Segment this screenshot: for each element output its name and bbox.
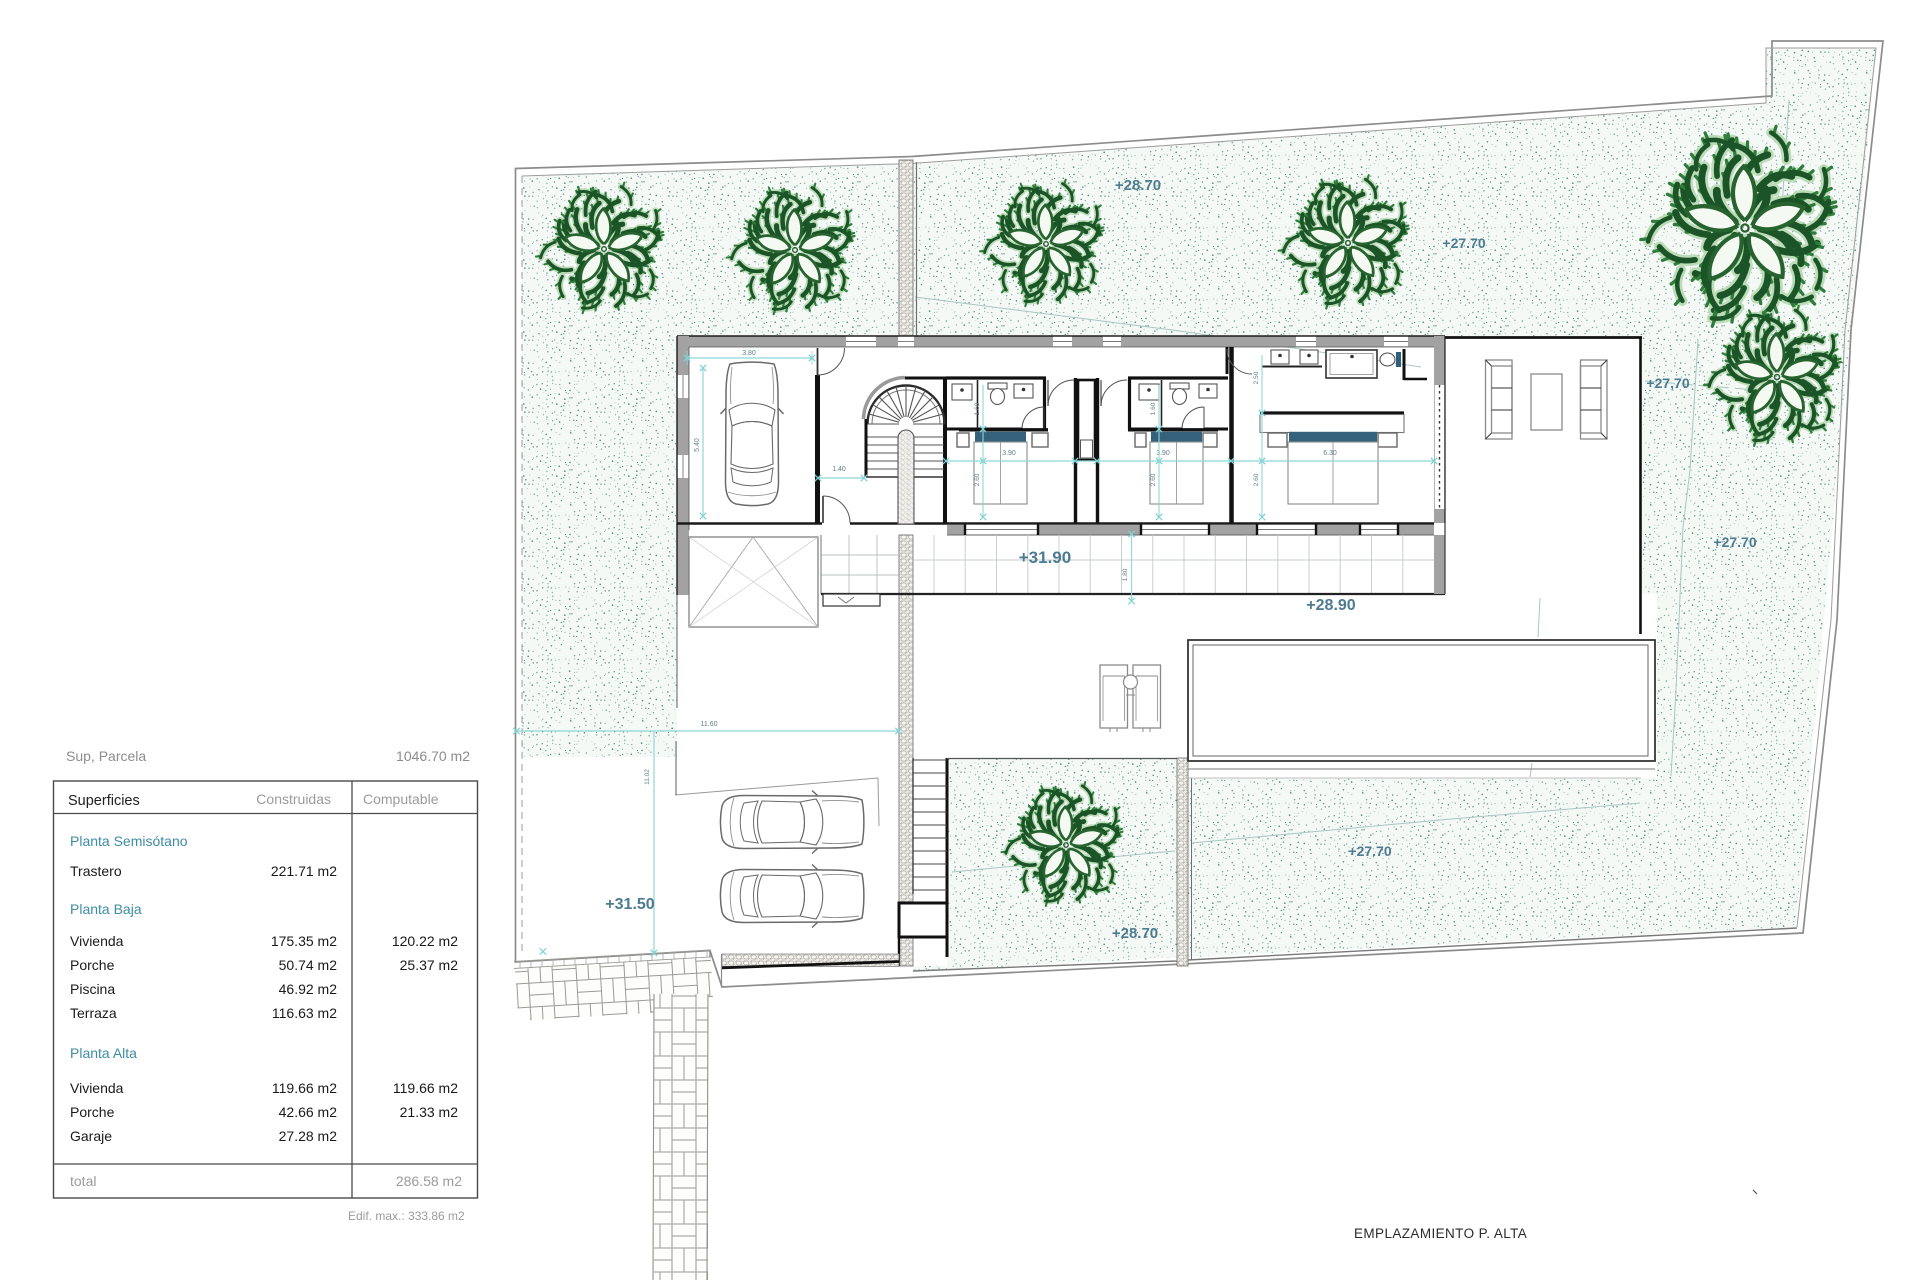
svg-text:Trastero: Trastero [70, 863, 122, 879]
svg-text:Computable: Computable [363, 791, 439, 807]
svg-text:2.60: 2.60 [1253, 473, 1260, 486]
svg-text:221.71 m2: 221.71 m2 [271, 863, 337, 879]
svg-text:175.35 m2: 175.35 m2 [271, 933, 337, 949]
svg-text:2.60: 2.60 [1150, 473, 1157, 486]
svg-text:Vivienda: Vivienda [70, 933, 124, 949]
svg-text:116.63 m2: 116.63 m2 [272, 1005, 337, 1021]
svg-text:1.80: 1.80 [1122, 568, 1129, 581]
svg-text:3.90: 3.90 [1002, 450, 1016, 457]
svg-text:1046.70 m2: 1046.70 m2 [396, 748, 470, 764]
svg-text:Planta Alta: Planta Alta [70, 1045, 137, 1061]
svg-text:Superficies: Superficies [68, 793, 140, 809]
svg-text:+28.70: +28.70 [1115, 177, 1161, 194]
svg-text:11.60: 11.60 [701, 721, 718, 728]
svg-text:+27.70: +27.70 [1442, 235, 1485, 251]
svg-text:+31.50: +31.50 [605, 896, 654, 913]
svg-text:Porche: Porche [70, 957, 115, 973]
svg-text:total: total [70, 1173, 96, 1189]
svg-text:+28.70: +28.70 [1112, 925, 1158, 942]
svg-text:119.66 m2: 119.66 m2 [393, 1080, 458, 1096]
svg-text:+31.90: +31.90 [1019, 548, 1071, 567]
svg-text:Terraza: Terraza [70, 1005, 117, 1021]
svg-text:EMPLAZAMIENTO P. ALTA: EMPLAZAMIENTO P. ALTA [1354, 1226, 1527, 1241]
svg-text:Piscina: Piscina [70, 981, 115, 997]
svg-text:Porche: Porche [70, 1104, 115, 1120]
svg-text:Planta Semisótano: Planta Semisótano [70, 833, 188, 849]
svg-text:11.02: 11.02 [644, 769, 651, 785]
svg-text:46.92 m2: 46.92 m2 [279, 981, 338, 997]
svg-text:+28.90: +28.90 [1306, 597, 1355, 614]
svg-text:Edif. max.: 333.86 m2: Edif. max.: 333.86 m2 [348, 1209, 465, 1223]
svg-text:Garaje: Garaje [70, 1128, 112, 1144]
svg-text:1.60: 1.60 [1150, 402, 1157, 415]
svg-text:+27,70: +27,70 [1646, 375, 1689, 391]
svg-text:42.66 m2: 42.66 m2 [279, 1104, 338, 1120]
svg-text:+27.70: +27.70 [1713, 534, 1756, 550]
svg-text:5.40: 5.40 [694, 438, 701, 452]
svg-text:120.22 m2: 120.22 m2 [392, 933, 458, 949]
svg-text:1.60: 1.60 [974, 402, 981, 415]
svg-text:25.37 m2: 25.37 m2 [400, 957, 459, 973]
svg-text:286.58 m2: 286.58 m2 [396, 1173, 462, 1189]
svg-text:Sup, Parcela: Sup, Parcela [66, 748, 146, 764]
svg-text:6.30: 6.30 [1323, 450, 1337, 457]
svg-text:Construidas: Construidas [256, 791, 331, 807]
svg-text:+27.70: +27.70 [1348, 843, 1391, 859]
svg-text:Vivienda: Vivienda [70, 1080, 124, 1096]
svg-text:50.74 m2: 50.74 m2 [279, 957, 338, 973]
svg-text:119.66 m2: 119.66 m2 [272, 1080, 337, 1096]
svg-text:Planta Baja: Planta Baja [70, 901, 142, 917]
svg-text:2.50: 2.50 [1253, 371, 1260, 384]
svg-text:1.40: 1.40 [832, 466, 846, 473]
svg-text:3.90: 3.90 [1156, 450, 1170, 457]
svg-text:3.80: 3.80 [742, 350, 756, 357]
svg-text:27.28 m2: 27.28 m2 [279, 1128, 338, 1144]
svg-text:21.33 m2: 21.33 m2 [400, 1104, 459, 1120]
svg-text:2.60: 2.60 [974, 473, 981, 486]
